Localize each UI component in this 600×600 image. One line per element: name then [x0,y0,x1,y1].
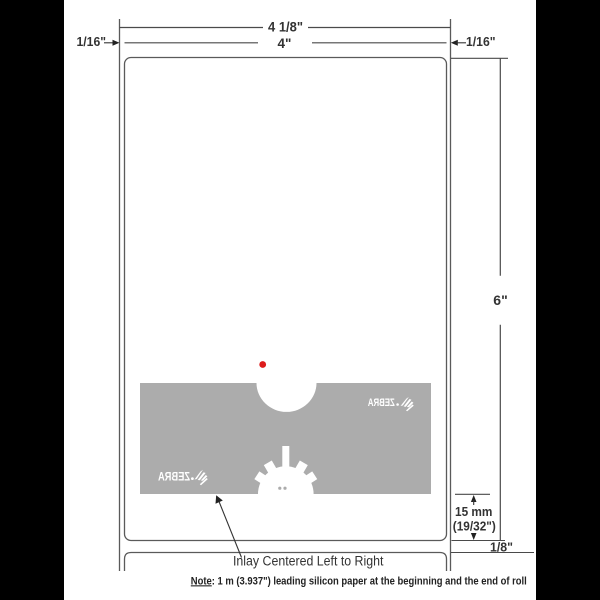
svg-text:ZEBRA: ZEBRA [158,471,190,483]
svg-text:1/8": 1/8" [490,541,513,555]
svg-text:1/16": 1/16" [466,34,496,49]
svg-text:Inlay Centered Left to Right: Inlay Centered Left to Right [233,554,384,569]
svg-text:15 mm: 15 mm [455,504,492,519]
svg-text:4": 4" [278,36,292,51]
svg-text:(19/32"): (19/32") [453,519,496,534]
svg-text:1/16": 1/16" [77,34,107,49]
svg-text:4 1/8": 4 1/8" [268,20,303,35]
svg-text:6": 6" [493,292,507,308]
svg-text:Note: 1 m (3.937") leading sil: Note: 1 m (3.937") leading silicon paper… [191,575,527,587]
svg-text:ZEBRA: ZEBRA [368,397,395,409]
